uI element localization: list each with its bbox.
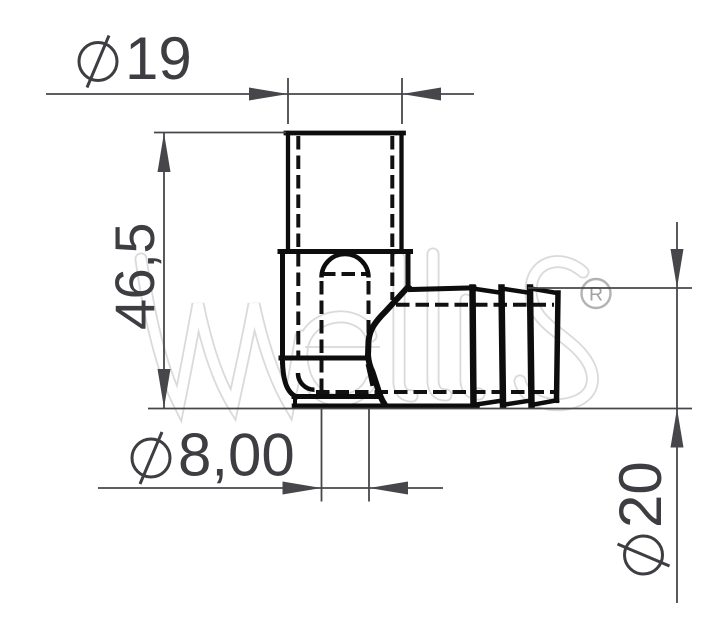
svg-text:46,5: 46,5 bbox=[103, 223, 166, 330]
svg-text:R: R bbox=[589, 284, 603, 306]
svg-text:20: 20 bbox=[607, 461, 674, 528]
svg-text:8,00: 8,00 bbox=[178, 422, 295, 489]
svg-text:19: 19 bbox=[125, 25, 192, 92]
